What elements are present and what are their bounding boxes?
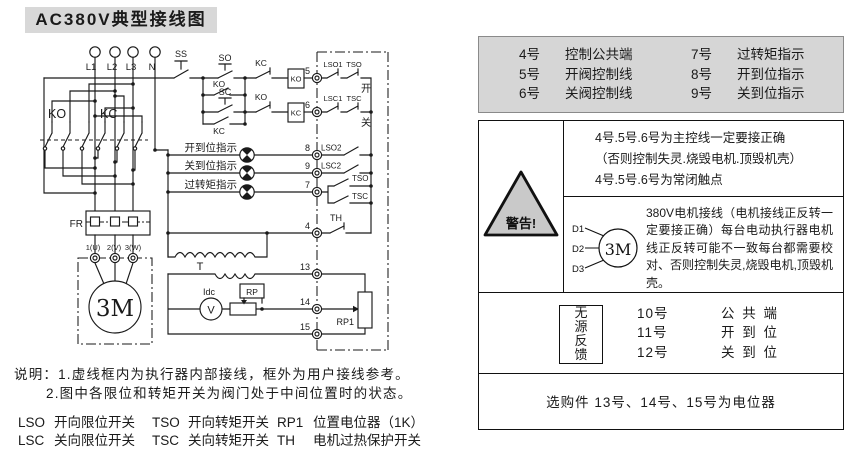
legend-desc: 开向转矩开关 — [188, 415, 269, 430]
legend-desc: 关向限位开关 — [54, 433, 135, 448]
warning-line: 4号.5号.6号为常闭触点 — [595, 170, 843, 191]
legend-row-2: LSC关向限位开关 TSC关向转矩开关 TH电机过热保护开关 — [14, 429, 421, 449]
warning-line: 4号.5号.6号为主控线一定要接正确 — [595, 128, 843, 149]
lsc1-label: LSC1 — [324, 94, 343, 103]
motor-warning-paragraph: 380V电机接线（电机接线正反转一定要接正确）每台电动执行器电机线正反转可能不一… — [646, 205, 833, 293]
kc-contactor-label: KC — [100, 107, 117, 121]
ko-coil-label: KO — [291, 75, 302, 84]
table-row: 6号 关阀控制线 9号 关到位指示 — [519, 84, 843, 104]
feedback-desc: 开 到 位 — [721, 323, 779, 343]
fr-label: FR — [70, 219, 83, 230]
terminal-13: 13 — [300, 262, 310, 272]
sc-button-label: SC — [219, 87, 232, 97]
terminal-desc: 开阀控制线 — [565, 65, 691, 85]
lead-d3-label: D3 — [572, 264, 584, 275]
motor-terminal-2v: 2(V) — [107, 243, 122, 252]
warning-column: 警告! — [479, 121, 564, 292]
kc-coil-label: KC — [291, 109, 302, 118]
n-label: N — [149, 62, 156, 73]
optional-parts-section: 选购件 13号、14号、15号为电位器 — [478, 372, 844, 430]
motor-leads-diagram: D1 D2 D3 3M — [568, 217, 644, 283]
control-circuit: SS SO KO KC KO SC KC KO KC — [44, 49, 312, 136]
legend-item: TSO开向转矩开关 — [148, 411, 273, 431]
l3-label: L3 — [126, 62, 137, 73]
lamp-torque-label: 过转矩指示 — [185, 178, 238, 191]
tso2-label: TSO — [352, 174, 368, 183]
motor-3m: 1(U) 2(V) 3(W) 3M — [78, 243, 152, 344]
motor-terminal-3w: 3(W) — [125, 243, 142, 252]
rp1-label: RP1 — [336, 317, 354, 327]
close-char-label: 关 — [361, 116, 371, 129]
warning-section: 警告! 4号.5号.6号为主控线一定要接正确 （否则控制失灵.烧毁电机.顶毁机壳… — [478, 120, 844, 293]
lso2-label: LSO2 — [321, 144, 342, 153]
wiring-diagram-page: { "title": "AC380V典型接线图", "colors": { "g… — [0, 0, 850, 455]
terminal-no: 5号 — [519, 65, 551, 85]
legend-abbr: TSO — [152, 415, 188, 430]
close-indicator-lamp — [240, 166, 254, 180]
kc-hold-label: KC — [213, 126, 225, 136]
torque-indicator-lamp — [240, 185, 254, 199]
feedback-no: 12号 — [637, 343, 677, 363]
terminal-8: 8 — [305, 143, 310, 153]
legend-desc: 位置电位器（1K） — [313, 415, 424, 430]
terminal-5: 5 — [305, 66, 310, 76]
terminal-14: 14 — [300, 297, 310, 307]
motor-wiring-warning: D1 D2 D3 3M 380V电机接线（电机接线正反转一定要接正确）每台电动执… — [564, 197, 843, 293]
terminal-desc: 控制公共端 — [565, 45, 691, 65]
lead-d2-label: D2 — [572, 244, 584, 255]
passive-feedback-label-box: 无源反馈 — [559, 305, 603, 364]
legend-desc: 电机过热保护开关 — [313, 433, 421, 448]
terminal-no: 8号 — [691, 65, 723, 85]
tsc2-label: TSC — [352, 192, 368, 201]
feedback-desc: 公 共 端 — [721, 304, 779, 324]
warning-triangle-icon: 警告! — [483, 169, 559, 239]
tso1-label: TSO — [346, 60, 362, 69]
motor-label: 3M — [96, 296, 134, 322]
passive-feedback-section: 无源反馈 10号 公 共 端 11号 开 到 位 12号 关 到 位 — [478, 292, 844, 374]
lso1-label: LSO1 — [323, 60, 342, 69]
terminal-description-table: 4号 控制公共端 7号 过转矩指示 5号 开阀控制线 8号 开到位指示 6号 关… — [478, 36, 844, 113]
warning-texts: 4号.5号.6号为主控线一定要接正确 （否则控制失灵.烧毁电机.顶毁机壳） 4号… — [564, 121, 843, 292]
transformer-label: T — [197, 261, 204, 273]
warning-line: （否则控制失灵.烧毁电机.顶毁机壳） — [595, 149, 843, 170]
tsc1-label: TSC — [347, 94, 363, 103]
terminal-no: 9号 — [691, 84, 723, 104]
l2-label: L2 — [107, 62, 118, 73]
feedback-terminal-list: 10号 公 共 端 11号 开 到 位 12号 关 到 位 — [637, 304, 779, 363]
legend-abbr: LSO — [18, 415, 54, 430]
l1-label: L1 — [86, 62, 97, 73]
ko-interlock-label: KO — [255, 92, 268, 102]
lamp-open-label: 开到位指示 — [185, 141, 238, 154]
indicator-lamp-rows: 开到位指示 关到位指示 过转矩指示 — [153, 141, 312, 257]
terminal-desc: 开到位指示 — [737, 65, 805, 85]
note-line-2: 2.图中各限位和转矩开关为阀门处于中间位置时的状态。 — [46, 382, 412, 402]
terminal-no: 4号 — [519, 45, 551, 65]
terminal-no: 6号 — [519, 84, 551, 104]
legend-abbr: TSC — [152, 433, 188, 448]
power-terminals: L1 L2 L3 N — [86, 47, 160, 213]
legend-item: RP1位置电位器（1K） — [273, 411, 424, 431]
legend-abbr: TH — [277, 433, 313, 448]
voltmeter-label: V — [207, 305, 215, 317]
terminal-9: 9 — [305, 161, 310, 171]
table-row: 4号 控制公共端 7号 过转矩指示 — [519, 45, 843, 65]
terminal-7: 7 — [305, 180, 310, 190]
legend-item: LSC关向限位开关 — [14, 429, 148, 449]
so-button-label: SO — [218, 53, 231, 63]
motor-3m-label: 3M — [605, 240, 632, 259]
table-row: 5号 开阀控制线 8号 开到位指示 — [519, 65, 843, 85]
rp-label: RP — [246, 287, 258, 297]
terminal-desc: 过转矩指示 — [737, 45, 805, 65]
legend-row-1: LSO开向限位开关 TSO开向转矩开关 RP1位置电位器（1K） — [14, 411, 424, 431]
lsc2-label: LSC2 — [321, 162, 342, 171]
limit-switch-rows: LSO1 TSO 开 LSC1 TSC 关 LSO2 LSC2 TSO TSC … — [321, 60, 373, 233]
legend-abbr: LSC — [18, 433, 54, 448]
contactor-block: KO KC — [40, 78, 168, 195]
lead-d1-label: D1 — [572, 224, 584, 235]
feedback-row: 11号 开 到 位 — [637, 323, 779, 343]
legend-abbr: RP1 — [277, 415, 313, 430]
note-line-1: 说明：1.虚线框内为执行器内部接线，框外为用户接线参考。 — [14, 363, 410, 383]
terminal-4: 4 — [305, 221, 310, 231]
feedback-row: 10号 公 共 端 — [637, 304, 779, 324]
terminal-desc: 关阀控制线 — [565, 84, 691, 104]
feedback-row: 12号 关 到 位 — [637, 343, 779, 363]
th-label: TH — [330, 213, 342, 223]
terminal-no: 7号 — [691, 45, 723, 65]
ko-contactor-label: KO — [48, 107, 66, 121]
open-char-label: 开 — [361, 84, 371, 95]
motor-terminal-1u: 1(U) — [86, 243, 101, 252]
warning-text: 警告! — [506, 216, 536, 231]
open-indicator-lamp — [240, 148, 254, 162]
feedback-no: 10号 — [637, 304, 677, 324]
terminal-15: 15 — [300, 322, 310, 332]
feedback-desc: 关 到 位 — [721, 343, 779, 363]
optional-parts-text: 选购件 13号、14号、15号为电位器 — [546, 391, 776, 411]
main-control-warning: 4号.5号.6号为主控线一定要接正确 （否则控制失灵.烧毁电机.顶毁机壳） 4号… — [564, 121, 843, 197]
info-panel: 警告! 4号.5号.6号为主控线一定要接正确 （否则控制失灵.烧毁电机.顶毁机壳… — [478, 120, 844, 430]
legend-item: LSO开向限位开关 — [14, 411, 148, 431]
lamp-close-label: 关到位指示 — [185, 159, 238, 172]
legend-item: TH电机过热保护开关 — [273, 429, 421, 449]
ss-switch-label: SS — [175, 49, 187, 59]
legend-desc: 关向转矩开关 — [188, 433, 269, 448]
terminal-desc: 关到位指示 — [737, 84, 805, 104]
terminal-6: 6 — [305, 100, 310, 110]
kc-interlock-label: KC — [255, 58, 267, 68]
idc-label: Idc — [203, 287, 216, 297]
feedback-no: 11号 — [637, 323, 677, 343]
passive-feedback-label: 无源反馈 — [574, 306, 589, 362]
legend-item: TSC关向转矩开关 — [148, 429, 273, 449]
legend-desc: 开向限位开关 — [54, 415, 135, 430]
transformer-section: T V Idc RP RP1 — [168, 233, 372, 334]
